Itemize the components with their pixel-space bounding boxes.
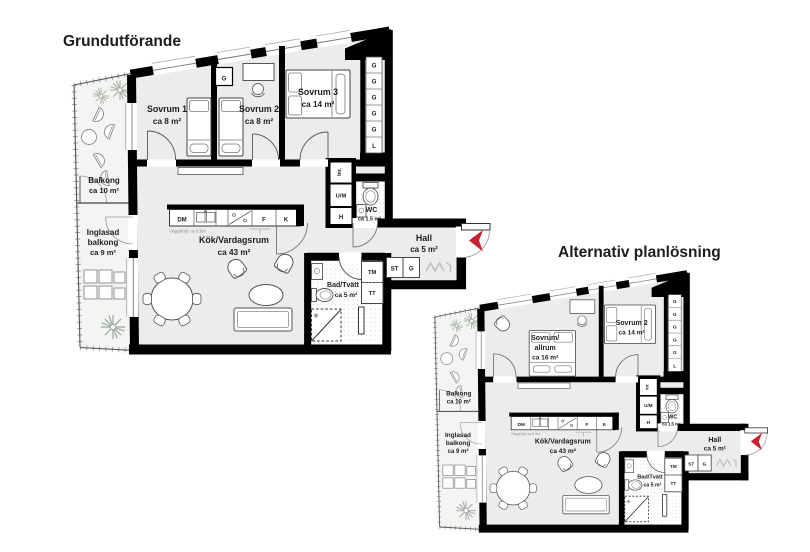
- closet-cell-label: G: [673, 299, 677, 305]
- closet-cell-label: L: [673, 363, 676, 369]
- sovrum1-label: Sovrum 1: [147, 104, 187, 114]
- hall-area: ca 5 m²: [704, 446, 726, 453]
- inglasad-label1: Inglasad: [445, 432, 471, 439]
- inr-label: Inr.: [644, 383, 649, 389]
- closet-cell-label: G: [673, 350, 677, 356]
- um-label: U/M: [644, 403, 653, 408]
- h-label: H: [339, 215, 343, 221]
- plan1-title: Grundutförande: [63, 33, 181, 50]
- inglasad-area: ca 9 m²: [90, 248, 116, 257]
- st-label: ST: [688, 461, 694, 467]
- tt-label: TT: [671, 481, 677, 486]
- f-label: F: [262, 218, 266, 224]
- wc-area: ca 1.5 m²: [358, 217, 381, 223]
- sovrum2-area: ca 8 m²: [245, 117, 273, 126]
- closet-cell-label: G: [673, 337, 677, 343]
- dm-label: DM: [517, 422, 524, 428]
- hall-g-label: G: [409, 267, 414, 273]
- sovrum-allrum-area: ca 16 m²: [532, 354, 559, 361]
- closet-cell-label: G: [372, 79, 377, 86]
- k-label: K: [603, 422, 607, 428]
- sovrum2-label: Sovrum 2: [239, 104, 279, 114]
- plan2-apartment: [435, 272, 768, 530]
- closet-cell-label: G: [372, 127, 377, 134]
- sovrum-allrum-label1: Sovrum/: [531, 335, 559, 342]
- wc-label: WC: [366, 207, 378, 214]
- closet-cell-label: G: [372, 111, 377, 118]
- inglasad-area: ca 9 m²: [448, 448, 469, 455]
- bad-label: Bad/Tvätt: [637, 475, 663, 481]
- balkong-label: Balkong: [88, 176, 120, 185]
- wall-note: Vägghöjd ca 0.9m: [511, 432, 541, 436]
- wardrobe-g-label: G: [222, 76, 227, 83]
- um-label: U/M: [336, 194, 347, 200]
- h-label: H: [647, 420, 651, 426]
- f-label: F: [585, 422, 588, 428]
- kok-area: ca 43 m²: [550, 448, 577, 455]
- hall-area: ca 5 m²: [410, 245, 438, 254]
- floorplan-canvas: Sovrum 1 ca 8 m² Sovrum 2 ca 8 m² Sovrum…: [0, 0, 810, 552]
- sovrum3-label: Sovrum 3: [298, 87, 338, 97]
- inglasad-label2: balkong: [446, 440, 471, 447]
- bad-area: ca 5 m²: [643, 483, 661, 489]
- tm-label: TM: [368, 270, 377, 276]
- bad-area: ca 5 m²: [335, 292, 358, 299]
- balkong-label: Balkong: [446, 390, 471, 397]
- closet-cell-label: L: [372, 143, 376, 150]
- hall-label: Hall: [416, 233, 432, 243]
- inglasad-label2: balkong: [88, 238, 119, 247]
- st-label: ST: [391, 267, 399, 273]
- sovrum2-area: ca 14 m²: [618, 330, 645, 337]
- sovrum1-area: ca 8 m²: [153, 117, 181, 126]
- plan1-apartment: [74, 29, 490, 351]
- inglasad-label1: Inglasad: [87, 228, 120, 237]
- tt-label: TT: [369, 291, 377, 297]
- kok-label: Kök/Vardagsrum: [535, 438, 591, 445]
- tm-label: TM: [670, 464, 677, 469]
- closet-cell-label: G: [673, 312, 677, 318]
- balkong-area: ca 10 m²: [447, 398, 471, 405]
- plan-grundutforande: Sovrum 1 ca 8 m² Sovrum 2 ca 8 m² Sovrum…: [74, 29, 490, 351]
- sovrum2-label: Sovrum 2: [616, 320, 648, 327]
- wall-note: Vägghöjd ca 0.9m: [169, 229, 206, 234]
- hall-g-label: G: [703, 461, 707, 467]
- plan2-title: Alternativ planlösning: [558, 244, 721, 261]
- closet-cell-label: G: [372, 63, 377, 70]
- hall-label: Hall: [708, 437, 721, 444]
- kok-area: ca 43 m²: [218, 248, 251, 257]
- sovrum-allrum-label2: allrum: [535, 345, 556, 352]
- bad-label: Bad/Tvätt: [327, 282, 360, 289]
- dm-label: DM: [177, 218, 186, 224]
- wc-area: ca 1.5 m²: [662, 421, 681, 426]
- wc-label: WC: [668, 415, 677, 421]
- kok-label: Kök/Vardagsrum: [199, 235, 269, 245]
- inr-label: Inr.: [337, 168, 343, 176]
- balkong-area: ca 10 m²: [89, 186, 120, 195]
- plan-alternativ: Sovrum/ allrum ca 16 m² Sovrum 2 ca 14 m…: [435, 272, 768, 530]
- closet-cell-label: G: [673, 325, 677, 331]
- closet-cell-label: G: [372, 95, 377, 102]
- sovrum3-area: ca 14 m²: [302, 100, 335, 109]
- k-label: K: [284, 218, 289, 224]
